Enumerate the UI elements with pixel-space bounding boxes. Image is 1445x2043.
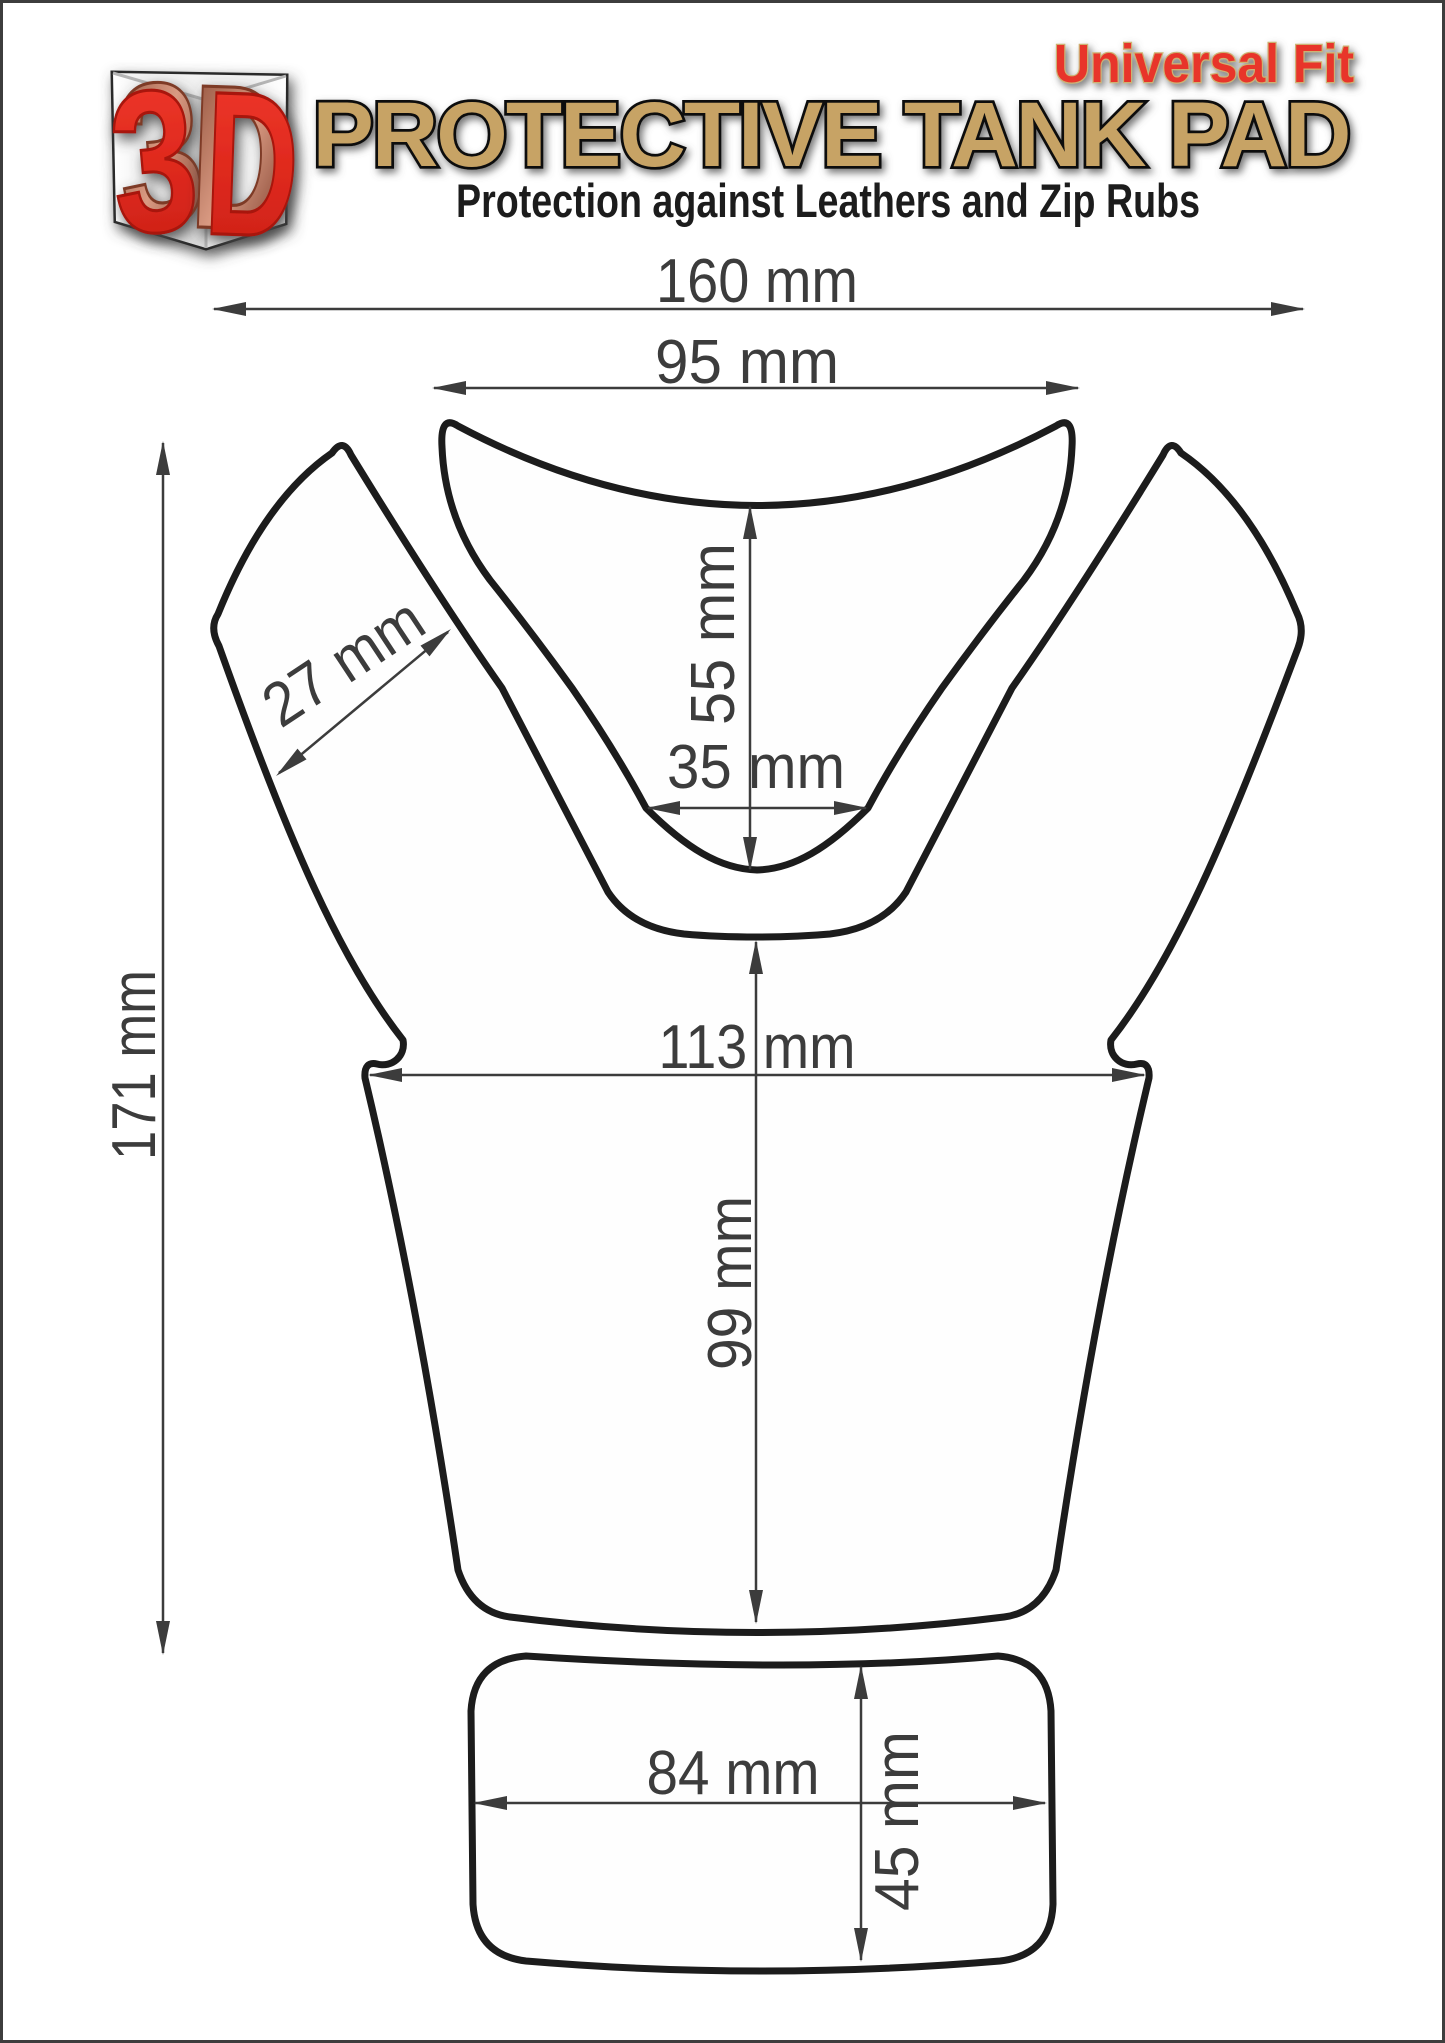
svg-text:55 mm: 55 mm [679, 543, 748, 725]
svg-text:171 mm: 171 mm [100, 970, 169, 1160]
svg-text:84 mm: 84 mm [647, 1739, 820, 1808]
svg-text:PROTECTIVE TANK PAD: PROTECTIVE TANK PAD [313, 84, 1350, 186]
svg-text:95 mm: 95 mm [655, 328, 839, 397]
svg-text:160 mm: 160 mm [656, 247, 858, 316]
svg-text:99 mm: 99 mm [696, 1196, 765, 1370]
svg-text:45 mm: 45 mm [863, 1731, 932, 1911]
svg-text:35 mm: 35 mm [667, 733, 845, 802]
svg-text:Protection against Leathers an: Protection against Leathers and Zip Rubs [456, 174, 1200, 227]
svg-text:D: D [201, 49, 302, 281]
